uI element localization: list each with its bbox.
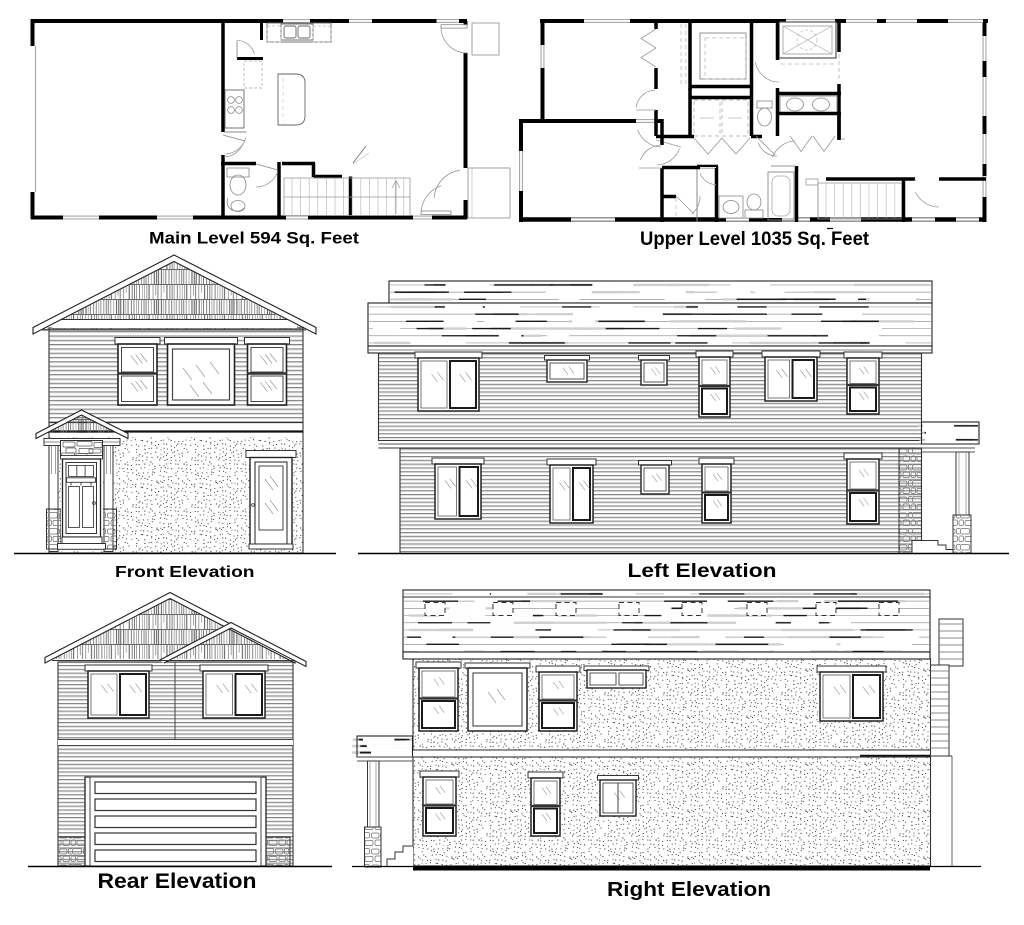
svg-text:Front Elevation: Front Elevation — [115, 564, 255, 581]
svg-text:Rear Elevation: Rear Elevation — [98, 869, 257, 893]
svg-text:Left Elevation: Left Elevation — [628, 561, 777, 582]
svg-text:Upper Level 1035 Sq. Feet: Upper Level 1035 Sq. Feet — [640, 228, 869, 250]
svg-text:Main Level 594 Sq. Feet: Main Level 594 Sq. Feet — [149, 229, 360, 248]
svg-text:Right Elevation: Right Elevation — [607, 879, 771, 901]
